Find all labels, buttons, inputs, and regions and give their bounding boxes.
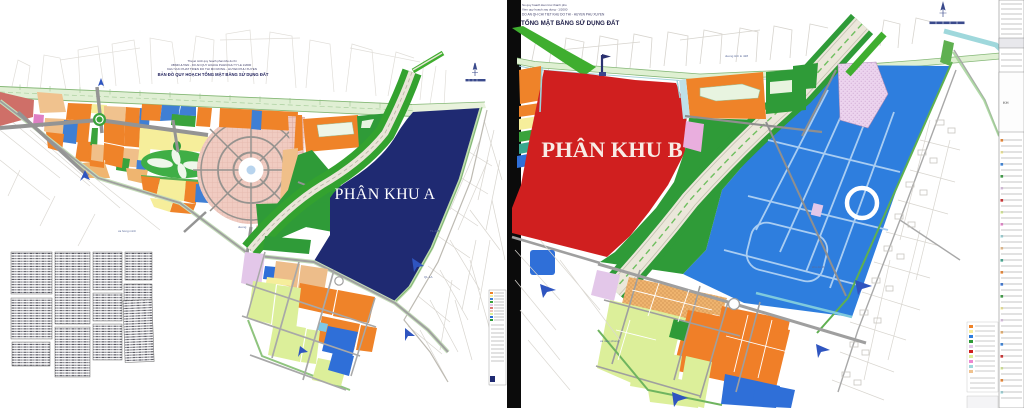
svg-text:QL.1A: QL.1A: [424, 275, 433, 279]
svg-text:BẢN ĐỒ QUY HOẠCH TỔNG MẶT BẰNG: BẢN ĐỒ QUY HOẠCH TỔNG MẶT BẰNG SỬ DỤNG Đ…: [158, 72, 269, 77]
svg-text:duong: duong: [238, 225, 247, 229]
svg-text:TỔNG MẶT BẰNG SỬ DỤNG ĐẤT: TỔNG MẶT BẰNG SỬ DỤNG ĐẤT: [521, 19, 620, 27]
svg-text:KHU VUC PHAT TRIEN DO THI MO R: KHU VUC PHAT TRIEN DO THI MO RONG - HUYE…: [167, 67, 257, 71]
svg-text:khu do thi: khu do thi: [812, 265, 825, 269]
svg-text:duong tinh lo 428: duong tinh lo 428: [725, 54, 748, 58]
svg-text:DO AN QH CHI TIET KHU DO THI -: DO AN QH CHI TIET KHU DO THI - HUYEN PHU…: [522, 12, 605, 16]
svg-text:PHÂN KHU B: PHÂN KHU B: [541, 136, 682, 162]
svg-text:KH: KH: [1003, 100, 1009, 105]
svg-text:So quy hoach kien truc thanh p: So quy hoach kien truc thanh pho: [522, 3, 567, 7]
svg-text:Vien quy hoach xay dung - 1/20: Vien quy hoach xay dung - 1/2000: [522, 7, 568, 11]
svg-text:TL.428: TL.428: [430, 229, 440, 233]
svg-text:PHÂN KHU A: PHÂN KHU A: [335, 184, 436, 203]
svg-text:xa hong minh: xa hong minh: [118, 229, 136, 233]
svg-text:xa nam phong: xa nam phong: [600, 339, 619, 343]
